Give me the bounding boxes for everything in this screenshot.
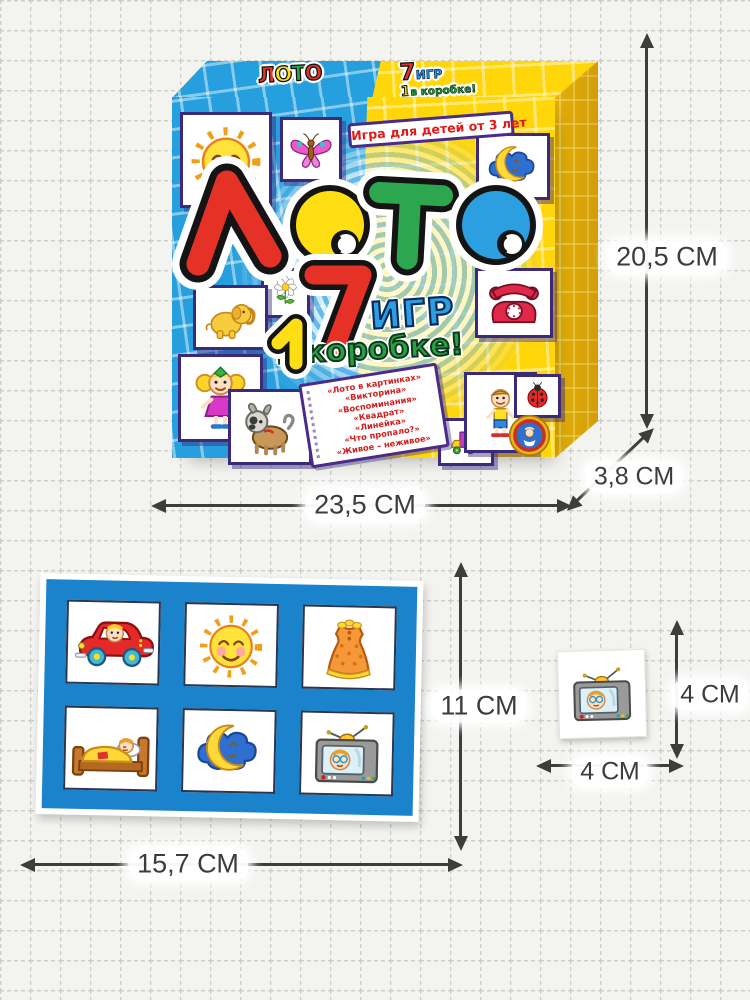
count-one	[266, 311, 316, 373]
publisher-logo	[506, 414, 553, 457]
car-icon	[70, 604, 156, 680]
game-chip	[557, 649, 647, 739]
card-cell-tv	[298, 710, 394, 796]
moon-cloud-icon	[186, 713, 272, 789]
ladybug-icon	[519, 379, 556, 413]
box-side-face	[555, 61, 598, 458]
tile-elephant	[193, 285, 268, 350]
card-cell-moon	[181, 708, 277, 794]
logo-letter: О	[304, 60, 322, 85]
elephant-icon	[198, 290, 263, 345]
logo-letter: Т	[291, 61, 306, 86]
box-height-label: 20,5 СМ	[607, 241, 727, 274]
chip-height-label: 4 СМ	[671, 680, 748, 711]
box-top-face: ЛОТО 7ИГР 1в коробке!	[172, 61, 598, 98]
dog-icon	[233, 394, 307, 460]
tile-ladybug	[514, 374, 561, 418]
lotto-card	[36, 573, 424, 822]
card-cell-sun	[183, 602, 279, 688]
box-width-label: 23,5 СМ	[305, 489, 425, 522]
card-cell-car	[65, 599, 161, 685]
lotto-card-grid	[42, 579, 418, 816]
badge-games-word: ИГР	[415, 67, 442, 82]
box-top-logo: ЛОТО	[257, 60, 322, 87]
logo-letter: Л	[257, 63, 275, 88]
card-width-label: 15,7 СМ	[128, 848, 248, 881]
box-front-face: Игра для детей от 3 лет «Лото в картинка…	[172, 97, 555, 458]
logo-letter: О	[274, 62, 292, 87]
card-cell-dress	[301, 604, 397, 690]
chip-width-label: 4 СМ	[571, 757, 648, 788]
badge-seven: 7	[399, 59, 416, 86]
bed-icon	[68, 710, 154, 786]
box-depth-label: 3,8 СМ	[585, 462, 683, 493]
tv-icon	[304, 715, 390, 791]
tile-dog	[228, 389, 312, 465]
tv-icon	[564, 656, 640, 732]
telephone-icon	[480, 273, 548, 333]
dress-icon	[306, 609, 392, 685]
card-height-label: 11 СМ	[431, 690, 526, 723]
tile-telephone	[475, 268, 553, 338]
box-top-badge: 7ИГР 1в коробке!	[399, 59, 476, 98]
sun-icon	[188, 607, 274, 683]
card-cell-bed	[63, 705, 159, 791]
box-height-arrow	[645, 46, 648, 416]
